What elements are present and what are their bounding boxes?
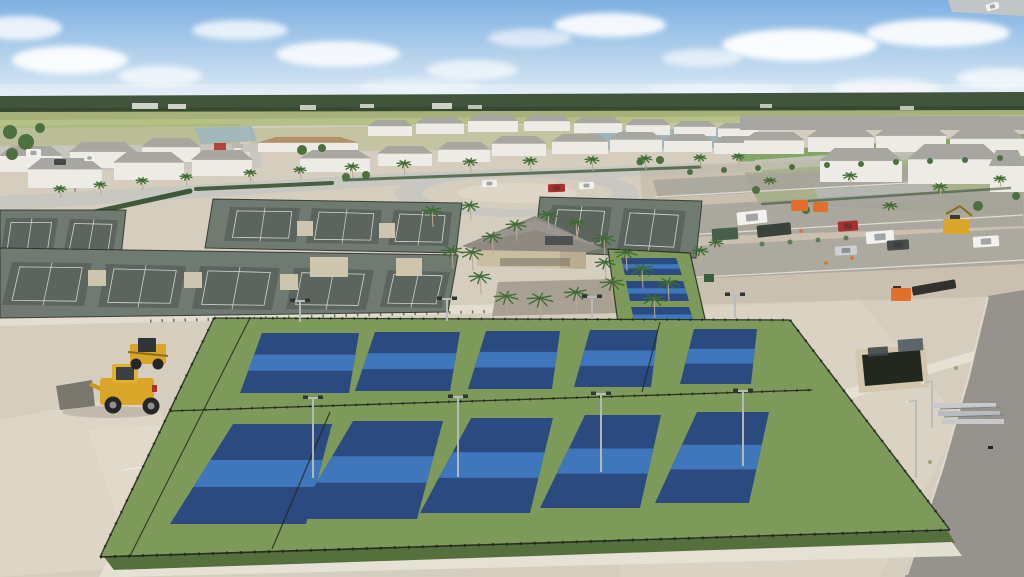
aerial-photo: Aerial drone photo of a community racque… [0, 0, 1024, 577]
palm-crown [575, 221, 578, 224]
house-wall [552, 142, 608, 154]
flood-light-head [305, 299, 310, 303]
dumpster [868, 346, 889, 356]
palm-crown [469, 160, 472, 163]
shrub [788, 240, 793, 245]
blue-court-center-band [557, 448, 654, 473]
house-wall [438, 150, 490, 162]
blue-court-center-band [362, 353, 456, 369]
tree [1012, 192, 1020, 200]
house-roof-row [740, 116, 1024, 130]
white-car-glass [486, 181, 492, 185]
palm-crown [715, 241, 718, 244]
palm-crown [653, 297, 656, 300]
tree [35, 123, 45, 133]
cloud [118, 66, 202, 86]
tree [893, 159, 899, 165]
tree [721, 167, 727, 173]
loader-cab-glass [116, 367, 134, 380]
cloud [276, 41, 400, 67]
tree [973, 201, 983, 211]
scene-canvas [0, 0, 1024, 577]
tree [789, 164, 795, 170]
cloud [866, 19, 1010, 47]
dark-car [54, 159, 66, 165]
house-wall [524, 121, 570, 131]
skidsteer-wheel [153, 359, 164, 370]
flood-light-head [606, 392, 611, 396]
blue-court-center-band [671, 445, 762, 470]
palm-crown [403, 162, 406, 165]
blue-court-center-band [248, 355, 355, 371]
flood-light-head [290, 299, 295, 303]
flood-light-head [303, 396, 308, 400]
white-pickup-glass [981, 238, 992, 245]
tree [656, 156, 664, 164]
green-dumpster [712, 227, 739, 241]
distant-building [300, 105, 316, 110]
distant-building [132, 103, 158, 109]
palm-crown [451, 249, 454, 252]
distant-building [760, 104, 772, 108]
flood-light-head [733, 389, 738, 393]
palm-crown [529, 159, 532, 162]
palm-crown [603, 237, 606, 240]
palm-crown [471, 251, 474, 254]
house-wall [492, 144, 546, 156]
palm-crown [849, 174, 852, 177]
loader-taillight [152, 385, 157, 392]
flood-light-head [318, 396, 323, 400]
palm-crown [644, 157, 647, 160]
house-wall [114, 163, 184, 180]
house-wall [908, 159, 1000, 184]
flood-light-head [582, 295, 587, 299]
cloud [426, 60, 518, 80]
palm-crown [351, 165, 354, 168]
yellow-backhoe [943, 219, 969, 234]
red-car-2-glass [553, 186, 560, 191]
tree [3, 125, 17, 139]
distant-building [360, 104, 374, 108]
palm-crown [539, 297, 542, 300]
cloud [722, 29, 878, 61]
orange-sweeper [891, 288, 911, 301]
house-wall [300, 158, 370, 172]
flood-light-head [437, 297, 442, 301]
bleacher-rail [942, 419, 1004, 424]
walkway-pad [297, 221, 313, 236]
palm-crown [431, 209, 434, 212]
flood-light-head [448, 395, 453, 399]
house-wall [574, 123, 622, 133]
palm-crown [141, 179, 144, 182]
white-truck-glass [31, 151, 37, 155]
tree [962, 157, 968, 163]
palm-crown [625, 251, 628, 254]
monument-cap [232, 144, 243, 148]
walkway-pad [184, 272, 202, 288]
palm-crown [99, 183, 102, 186]
palm-crown [641, 267, 644, 270]
shrub [760, 242, 765, 247]
skidsteer-wheel [131, 359, 142, 370]
walkway-pad [396, 258, 422, 276]
clubhouse-entry-shadow [500, 258, 570, 266]
palm-crown [59, 187, 62, 190]
grass-tuft [928, 460, 932, 464]
distant-building [900, 106, 914, 110]
street-light-head [922, 382, 925, 385]
white-van-2-glass [874, 233, 886, 241]
palm-crown [999, 177, 1002, 180]
utility-box [704, 274, 714, 282]
shrub [816, 238, 821, 243]
skidsteer-cab [138, 338, 156, 352]
loader-hub [110, 402, 117, 409]
house-wall [664, 141, 712, 152]
house-wall [368, 126, 412, 136]
cloud [192, 20, 288, 40]
flood-light-head [748, 389, 753, 393]
flood-light-head [591, 392, 596, 396]
white-van-glass [746, 213, 759, 221]
palm-crown [737, 155, 740, 158]
palm-crown [491, 235, 494, 238]
tree [824, 162, 830, 168]
flood-light-head [725, 293, 730, 297]
tree [342, 173, 350, 181]
loader-hub [148, 403, 155, 410]
palm-crown [299, 168, 302, 171]
flood-light-head [740, 293, 745, 297]
blue-court-center-band [580, 351, 656, 366]
blue-court-center-band [685, 349, 755, 364]
grass-tuft [954, 366, 958, 370]
tree [858, 161, 864, 167]
dark-suv-glass [893, 242, 902, 248]
tree [927, 158, 933, 164]
pond-left [195, 126, 257, 144]
tree [687, 169, 693, 175]
white-car-2-glass [583, 183, 589, 187]
silver-car-glass [841, 248, 850, 253]
flood-light-head [452, 297, 457, 301]
flood-light-head [597, 295, 602, 299]
palm-crown [699, 249, 702, 252]
tree [318, 144, 326, 152]
house-wall [744, 140, 804, 154]
walkway-pad [280, 274, 298, 290]
palm-crown [699, 156, 702, 159]
palm-crown [667, 281, 670, 284]
blue-court-center-band [316, 456, 433, 482]
clubhouse-window [545, 236, 573, 245]
distant-building [468, 105, 482, 109]
palm-crown [515, 223, 518, 226]
palm-crown [575, 291, 578, 294]
palm-crown [249, 171, 252, 174]
orange-lift-2 [813, 202, 828, 212]
cloud [488, 29, 572, 47]
palm-crown [769, 179, 772, 182]
cloud [12, 46, 128, 74]
tree [6, 148, 18, 160]
house-wall [192, 160, 252, 176]
palm-crown [469, 204, 472, 207]
dumpster [898, 338, 924, 352]
palm-crown [591, 158, 594, 161]
flood-light-head [463, 395, 468, 399]
palm-crown [889, 204, 892, 207]
traffic-cone [824, 261, 828, 265]
distant-building [432, 103, 452, 109]
walkway-pad [379, 223, 395, 238]
tree [997, 155, 1003, 161]
walkway-pad [88, 270, 106, 286]
tree [755, 165, 761, 171]
palm-crown [505, 295, 508, 298]
blue-court-center-band [475, 352, 557, 368]
blue-court-center-band [439, 452, 545, 478]
palm-frond [527, 298, 540, 299]
shrub [844, 236, 849, 241]
street-light-head [906, 401, 909, 404]
palm-crown [939, 185, 942, 188]
traffic-cone [850, 256, 854, 260]
house-wall [416, 123, 464, 134]
walkway-pad [310, 257, 348, 277]
traffic-cone [799, 229, 803, 233]
house-wall [468, 121, 518, 132]
blue-court-center-band [627, 288, 686, 293]
palm-crown [604, 261, 607, 264]
tree [297, 145, 307, 155]
palm-crown [185, 175, 188, 178]
orange-lift [791, 200, 808, 211]
tree [362, 171, 370, 179]
palm-crown [547, 213, 550, 216]
house-wall [610, 140, 662, 152]
small-object [988, 446, 993, 449]
palm-crown [611, 281, 614, 284]
red-car-glass [844, 223, 852, 229]
tree [752, 186, 760, 194]
cloud [554, 13, 666, 37]
house-wall [28, 169, 102, 188]
white-car-3-glass [87, 156, 91, 159]
palm-crown [479, 275, 482, 278]
tree [18, 134, 34, 150]
blue-court-center-band [193, 460, 322, 487]
distant-building [168, 104, 186, 109]
